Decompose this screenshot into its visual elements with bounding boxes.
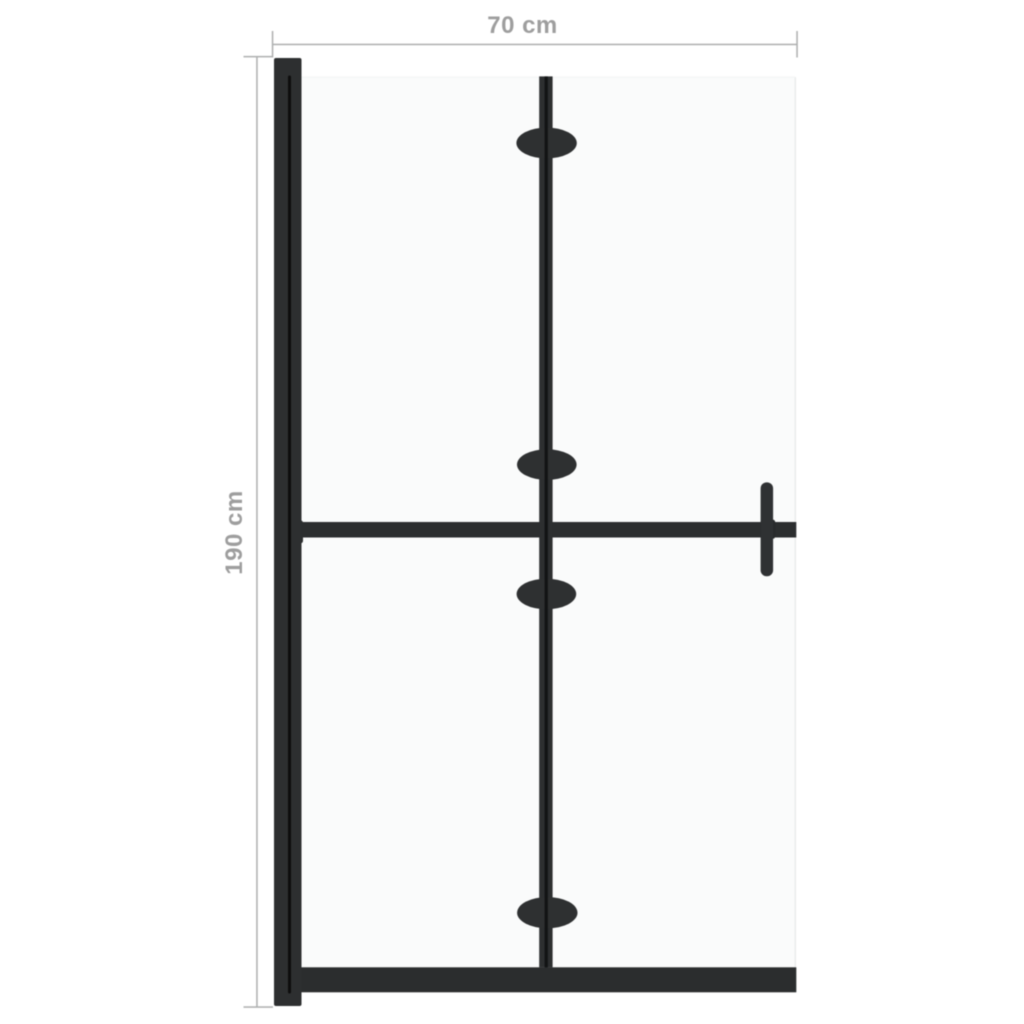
svg-text:190 cm: 190 cm [221, 490, 248, 574]
svg-text:70 cm: 70 cm [487, 12, 558, 39]
